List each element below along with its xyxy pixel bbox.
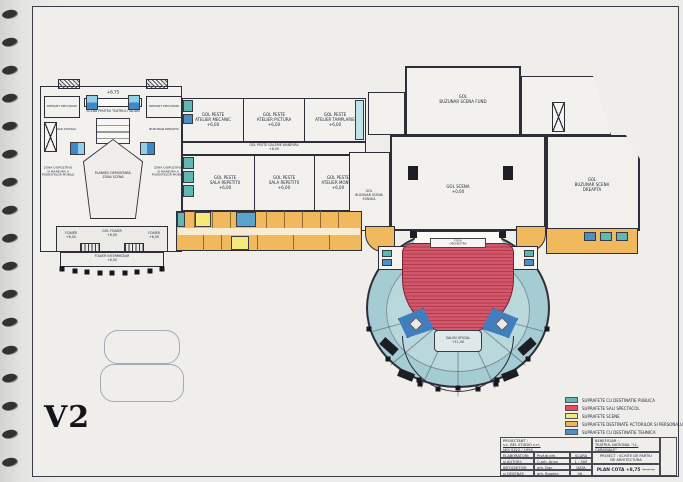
staircase xyxy=(44,122,57,152)
room-label-sala-repetitii-1: GOL PESTE SALA REPETITII +6,00 xyxy=(210,176,240,190)
spiral-ring-icon xyxy=(1,149,17,160)
column xyxy=(476,387,481,392)
wall xyxy=(203,235,204,251)
room-label-buzunar-fund: GOL BUZUNAR SCENA FUND xyxy=(439,95,486,105)
wall xyxy=(314,155,315,211)
wall xyxy=(254,155,255,211)
room-label-galerie-manevra: GOL PESTE GALERIE MANEVRA +6,00 xyxy=(249,144,298,152)
column xyxy=(436,387,441,392)
portal-pier xyxy=(408,166,418,180)
wall xyxy=(221,235,222,251)
legend-label: SUPRAFETE CU DESTINATIE TEHNICA xyxy=(582,430,656,435)
room-label-buzunar-dreapta: GOL BUZUNAR SCENA DREAPTA xyxy=(575,178,610,192)
titleblock-beneficiar: BENEFICIAR : TEATRUL NATIONAL "I.L. CARA… xyxy=(592,437,660,452)
gol-scena xyxy=(390,135,546,231)
proscenium-pier xyxy=(410,231,417,238)
room-label-zona-dispozitive-right: ZONA DISPOZITIVE SI MANEVRA A PODESTELOR… xyxy=(151,167,185,178)
room-label-gol-foaier: GOL FOAIER +6,00 xyxy=(102,230,121,238)
beneficiar-name: TEATRUL NATIONAL "I.L. CARAGIALE" xyxy=(595,443,657,452)
room-label-scena-italiana: SCENA PENTRU TEATRUL ITALIAN xyxy=(74,110,152,114)
legend-swatch-public xyxy=(565,397,578,403)
spiral-ring-icon xyxy=(1,345,17,356)
room-label-gol-scena: GOL SCENA +0,00 xyxy=(446,185,469,195)
data-value: 06 - 2007 xyxy=(570,470,592,476)
scene-surface-patch xyxy=(195,212,211,227)
wall xyxy=(338,211,339,228)
technical-box xyxy=(70,142,85,155)
wall xyxy=(266,211,267,228)
room-label-sala-repetitii-2: GOL PESTE SALA REPETITII +6,00 xyxy=(269,176,299,190)
column xyxy=(148,269,153,274)
spiral-ring-icon xyxy=(1,65,17,76)
column xyxy=(418,382,423,387)
version-label: V2 xyxy=(44,400,90,435)
stage-west-room xyxy=(368,92,405,135)
technical-box xyxy=(183,100,193,112)
technical-box xyxy=(236,212,256,227)
room-label-buzunar-dreapta-small: BUZUNAR DREAPTA xyxy=(149,128,179,132)
wall xyxy=(302,211,303,228)
column xyxy=(85,270,90,275)
technical-box xyxy=(140,142,155,155)
column xyxy=(367,327,372,332)
spiral-ring-icon xyxy=(1,37,17,48)
room-label-atelier-pictura: GOL PESTE ATELIER PICTURA +6,00 xyxy=(257,113,292,127)
foyer-stairs xyxy=(124,243,144,252)
legend-swatch-technical xyxy=(565,429,578,435)
level-mark: +6,75 xyxy=(107,91,119,96)
roof-hatch xyxy=(58,79,80,89)
technical-box xyxy=(177,212,185,227)
scene-surface-patch xyxy=(231,236,249,250)
spiral-ring-icon xyxy=(1,373,17,384)
foyer-stairs xyxy=(80,243,100,252)
proiect-line2: DE ARHITECTURA xyxy=(595,458,657,462)
column xyxy=(110,271,115,276)
wall xyxy=(293,235,294,251)
legend-label: SUPRAFETE SCENE xyxy=(582,414,620,419)
technical-box xyxy=(355,100,364,140)
proscenium-pier xyxy=(499,231,506,238)
technical-box xyxy=(584,232,596,241)
technical-box xyxy=(183,185,194,197)
technical-box xyxy=(616,232,628,241)
legend-label: SUPRAFETE CU DESTINATIE PUBLICA xyxy=(582,398,655,403)
legend-swatch-hall xyxy=(565,405,578,411)
wall xyxy=(230,211,231,228)
wall xyxy=(320,211,321,228)
technical-box xyxy=(128,95,140,110)
spiral-ring-icon xyxy=(1,289,17,300)
room-label-planseu: PLANSEU DEMONTABIL ZONA SCENA xyxy=(88,172,138,180)
wall xyxy=(212,211,213,228)
column xyxy=(98,271,103,276)
spiral-ring-icon xyxy=(1,9,17,20)
wall xyxy=(243,98,244,142)
room-label-foaier-left: FOAIER +6,00 xyxy=(65,232,77,240)
room-label-fosa-orchestra: FOSA ORCHESTRA xyxy=(449,240,466,247)
technical-box xyxy=(600,232,612,241)
wall xyxy=(304,98,305,142)
room-label-foaier-right: FOAIER +6,00 xyxy=(148,232,160,240)
column xyxy=(526,357,531,362)
spiral-ring-icon xyxy=(1,93,17,104)
column xyxy=(73,269,78,274)
technical-box xyxy=(183,114,193,124)
titleblock-sheet-no xyxy=(660,437,677,476)
technical-box xyxy=(183,171,194,183)
wall xyxy=(257,235,258,251)
legend-label: SUPRAFETE SALI SPECTACOL xyxy=(582,406,640,411)
titleblock-proiectant: PROIECTANT : s.c. BEL STUDIO s.r.l. J40/… xyxy=(500,437,592,452)
column xyxy=(494,382,499,387)
spiral-ring-icon xyxy=(1,429,17,440)
room-label-foaier-intermediar: FOAIER INTERMEDIAR +6,00 xyxy=(95,255,130,263)
room-label-atelier-mecanic: GOL PESTE ATELIER MECANIC +6,00 xyxy=(195,113,231,127)
spiral-ring-icon xyxy=(1,457,17,468)
lower-level-outline xyxy=(100,364,184,402)
technical-box xyxy=(183,157,194,169)
legend-label: SUPRAFETE DESTINATE ACTORILOR SI PERSONA… xyxy=(582,422,683,427)
column xyxy=(135,270,140,275)
lower-level-outline xyxy=(104,330,180,364)
room-label-buzunar-stanga: GOL BUZUNAR SCENA STANGA xyxy=(355,190,383,202)
proiect-cell: PROIECT : SCHITE DE PARTIU DE ARHITECTUR… xyxy=(592,452,660,464)
room-label-depozit-left: DEPOZIT DECORURI xyxy=(46,105,78,109)
spiral-ring-icon xyxy=(1,261,17,272)
column xyxy=(386,357,391,362)
corridor xyxy=(178,228,360,235)
spiral-ring-icon xyxy=(1,233,17,244)
legend-swatch-scene xyxy=(565,413,578,419)
column xyxy=(160,267,165,272)
technical-box xyxy=(524,250,534,257)
technical-box xyxy=(524,259,534,266)
technical-box xyxy=(86,95,98,110)
plan-cota-cell: PLAN COTA +8,75 ——— +11,00 xyxy=(592,464,660,476)
spiral-ring-icon xyxy=(1,177,17,188)
portal-pier xyxy=(503,166,513,180)
technical-box xyxy=(382,250,392,257)
room-label-zona-dispozitive-left: ZONA DISPOZITIVE SI MANEVRA A PODESTELOR… xyxy=(41,167,75,178)
legend-swatch-actors xyxy=(565,421,578,427)
spiral-ring-icon xyxy=(1,317,17,328)
role-name: arh. Bogdan CRACIUN xyxy=(534,470,570,476)
wall xyxy=(284,211,285,228)
room-label-depozit-right: DEPOZIT DECORURI xyxy=(148,105,180,109)
scanned-sheet: +6,75 SCENA PENTRU TEATRUL ITALIAN DEPOZ… xyxy=(0,0,683,482)
technical-box xyxy=(382,259,392,266)
staircase xyxy=(552,102,565,132)
roof-hatch xyxy=(146,79,168,89)
room-label-atelier-tamplarie: GOL PESTE ATELIER TAMPLARIE +6,00 xyxy=(315,113,355,127)
spiral-ring-icon xyxy=(1,121,17,132)
column xyxy=(123,271,128,276)
column xyxy=(60,267,65,272)
role-label: si DESENAT: xyxy=(500,470,534,476)
spiral-ring-icon xyxy=(1,401,17,412)
spiral-ring-icon xyxy=(1,205,17,216)
wall xyxy=(329,235,330,251)
column xyxy=(545,327,550,332)
